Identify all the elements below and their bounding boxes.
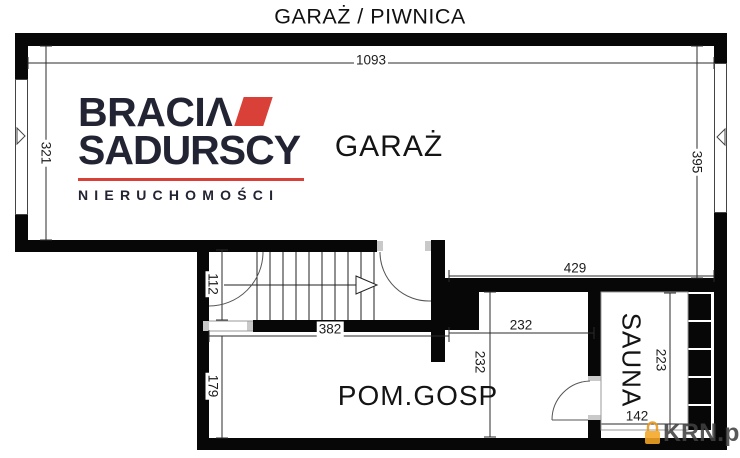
dim-label-garage-left-height: 321: [39, 140, 54, 167]
wall-stair-divider: [431, 240, 445, 362]
dim-label-garage-bottom-width: 429: [562, 261, 589, 276]
stair-treads: [257, 252, 374, 320]
door-jamb: [203, 321, 209, 331]
chimney-block: [445, 290, 479, 330]
wall-garage-bottom-left: [15, 240, 377, 252]
window-left-marker-icon: [17, 128, 25, 144]
krn-watermark-text: KRN.pl: [663, 420, 740, 448]
room-label-utility: POM.GOSP: [338, 380, 498, 412]
sauna-bench-blocks: [688, 294, 711, 430]
room-label-sauna: SAUNA: [616, 313, 647, 408]
krn-watermark: KRN.pl: [644, 420, 740, 448]
stair-direction-arrowhead-icon: [356, 276, 377, 294]
room-label-garage: GARAŻ: [335, 130, 443, 164]
window-right-marker-icon: [717, 129, 725, 145]
logo-word-sadurscy: SADURSCY: [78, 130, 304, 171]
door-jamb: [588, 415, 601, 420]
wall-sauna-left-lower: [588, 420, 601, 438]
dim-label-utility-height: 179: [206, 373, 221, 400]
wall-right-upper: [714, 33, 727, 63]
roof-icon: [234, 97, 272, 126]
window-left: [16, 80, 28, 215]
logo-divider: [78, 178, 304, 181]
door-arc-sauna: [552, 381, 590, 420]
door-jamb: [588, 376, 601, 381]
stairs: [224, 252, 377, 320]
wall-right-lower: [714, 213, 727, 450]
dim-label-mid-room-height: 232: [473, 349, 488, 376]
door-jamb: [247, 321, 253, 331]
dim-label-stair-height: 112: [206, 271, 221, 297]
door-jamb: [425, 241, 431, 251]
door-arc-stair-top: [380, 252, 431, 301]
wall-stair-bottom: [253, 320, 445, 332]
logo-word-nieruchomosci: NIERUCHOMOŚCI: [78, 187, 304, 203]
wall-left-upper: [15, 33, 28, 79]
dim-label-garage-width: 1093: [354, 53, 388, 68]
dim-label-garage-right-height: 395: [690, 149, 705, 176]
dim-label-mid-room-width: 232: [508, 318, 535, 333]
wall-sauna-left-upper: [588, 292, 601, 376]
dim-label-stair-width: 382: [317, 322, 344, 337]
dim-label-sauna-height: 223: [654, 347, 669, 374]
door-jamb: [377, 241, 383, 251]
wall-garage-bottom-right: [431, 278, 727, 292]
page-title: GARAŻ / PIWNICA: [274, 5, 465, 30]
window-right: [715, 64, 727, 213]
krn-padlock-icon: [644, 420, 661, 446]
wall-top: [15, 33, 727, 46]
agency-logo: BRACIΛ SADURSCY NIERUCHOMOŚCI: [78, 94, 304, 203]
floor-plan: GARAŻ / PIWNICA GARAŻ POM.GOSP SAUNA 109…: [0, 0, 740, 458]
